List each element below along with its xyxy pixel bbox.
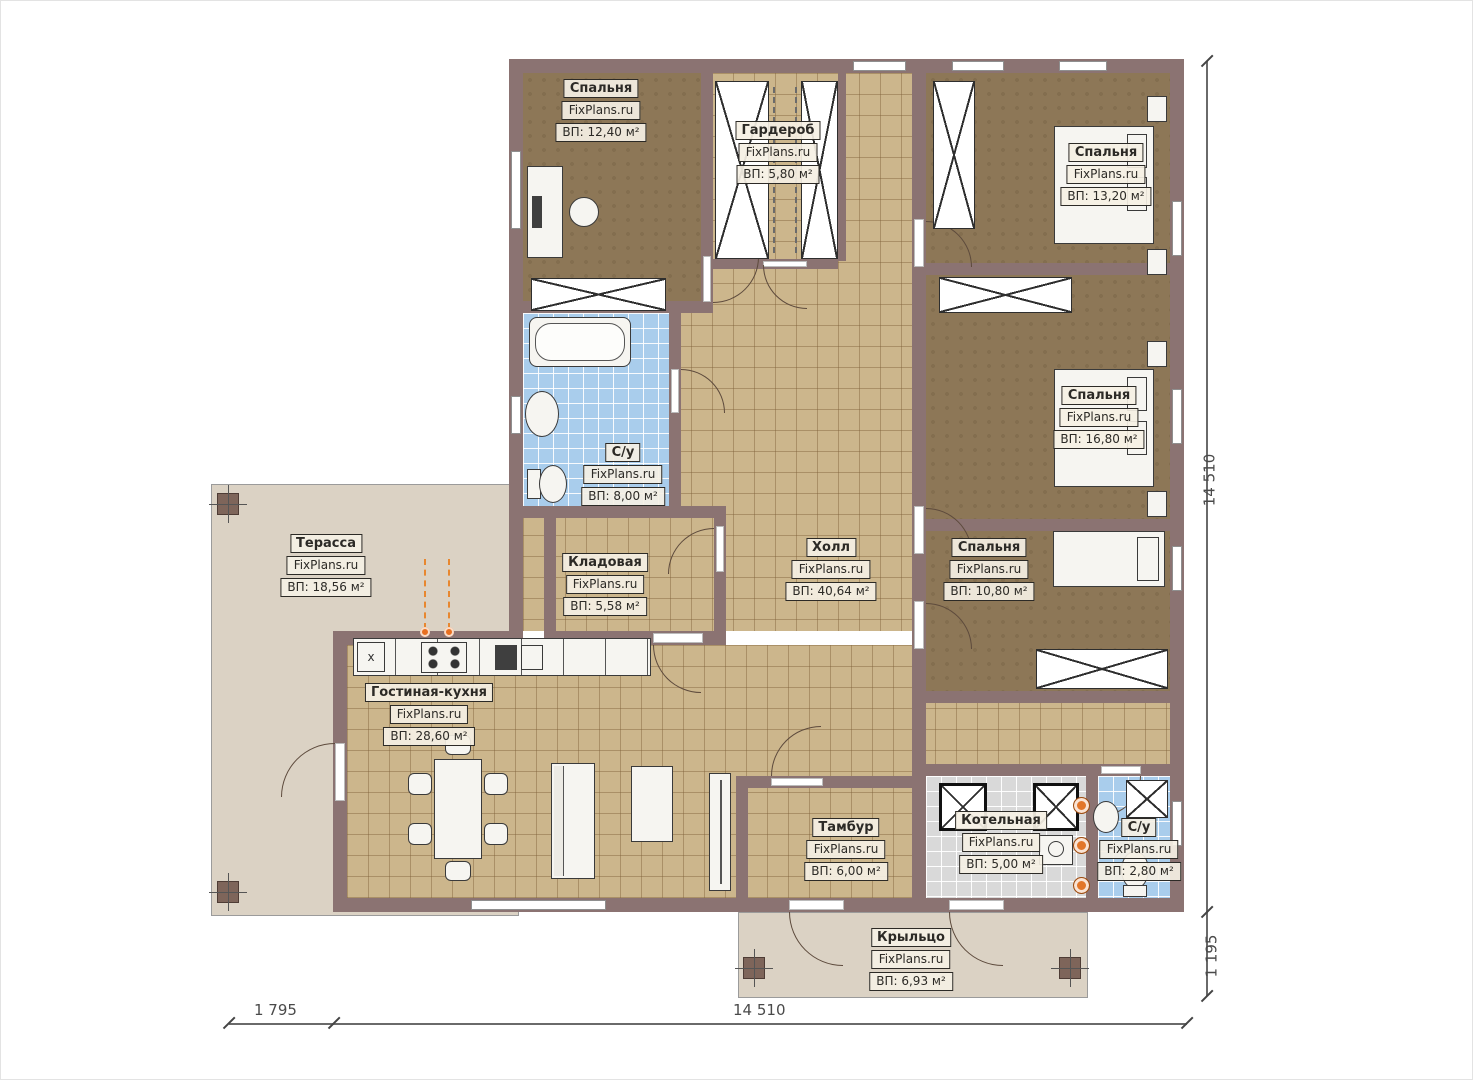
wardrobe-cabinet — [1036, 649, 1168, 689]
room-area: ВП: 13,20 м² — [1060, 187, 1151, 206]
room-label-bedroom1: Спальня FixPlans.ru ВП: 12,40 м² — [555, 79, 646, 142]
room-label-terrace: Терасса FixPlans.ru ВП: 18,56 м² — [280, 534, 371, 597]
sofa — [551, 763, 595, 879]
closet — [933, 81, 975, 229]
gas-line — [448, 559, 450, 629]
room-label-bedroom4: Спальня FixPlans.ru ВП: 10,80 м² — [943, 538, 1034, 601]
room-name: Крыльцо — [871, 928, 951, 947]
brand-link: FixPlans.ru — [566, 575, 645, 594]
brand-link: FixPlans.ru — [950, 560, 1029, 579]
door-opening — [949, 900, 1004, 910]
bathtub — [529, 317, 631, 367]
sink-drainer — [495, 645, 517, 670]
room-label-porch: Крыльцо FixPlans.ru ВП: 6,93 м² — [869, 928, 953, 991]
desk-chair — [569, 197, 599, 227]
chair — [484, 773, 508, 795]
wall — [926, 691, 1170, 703]
brand-link: FixPlans.ru — [792, 560, 871, 579]
nightstand — [1147, 96, 1167, 122]
kitchen-hood-marker: x — [357, 642, 385, 672]
room-area: ВП: 18,56 м² — [280, 578, 371, 597]
room-name: Терасса — [290, 534, 362, 553]
brand-link: FixPlans.ru — [739, 143, 818, 162]
valve-icon — [1073, 877, 1090, 894]
room-label-bath1: С/у FixPlans.ru ВП: 8,00 м² — [581, 443, 665, 506]
brand-link: FixPlans.ru — [807, 840, 886, 859]
window — [471, 900, 606, 910]
bathtub-basin — [535, 323, 625, 361]
room-label-wardrobe: Гардероб FixPlans.ru ВП: 5,80 м² — [736, 121, 821, 184]
room-label-bedroom2: Спальня FixPlans.ru ВП: 13,20 м² — [1060, 143, 1151, 206]
sink — [525, 391, 559, 437]
terrace-post — [217, 493, 239, 515]
room-label-hall: Холл FixPlans.ru ВП: 40,64 м² — [785, 538, 876, 601]
window — [1172, 389, 1182, 444]
window — [511, 396, 521, 434]
room-label-boiler: Котельная FixPlans.ru ВП: 5,00 м² — [955, 811, 1047, 874]
porch-post — [743, 957, 765, 979]
desktop-computer — [532, 196, 542, 228]
room-label-pantry: Кладовая FixPlans.ru ВП: 5,58 м² — [562, 553, 648, 616]
brand-link: FixPlans.ru — [287, 556, 366, 575]
floor-plan-canvas: x Спальня FixPlans.ru ВП: 12,40 м² Гарде… — [0, 0, 1473, 1080]
dimension-line-right — [1206, 61, 1208, 996]
closet — [939, 277, 1072, 313]
room-area: ВП: 5,80 м² — [736, 165, 820, 184]
window — [952, 61, 1004, 71]
room-area: ВП: 40,64 м² — [785, 582, 876, 601]
brand-link: FixPlans.ru — [584, 465, 663, 484]
room-label-bath2: С/у FixPlans.ru ВП: 2,80 м² — [1097, 818, 1181, 881]
door-opening — [914, 506, 924, 554]
toilet — [539, 465, 567, 503]
kitchen-marker-label: x — [367, 650, 374, 664]
room-name: Котельная — [955, 811, 1047, 830]
flame-icon — [420, 627, 430, 637]
chair — [484, 823, 508, 845]
room-label-bedroom3: Спальня FixPlans.ru ВП: 16,80 м² — [1053, 386, 1144, 449]
room-name: Спальня — [1069, 143, 1143, 162]
dimension-value-bottom-main: 14 510 — [733, 1001, 786, 1019]
flame-icon — [444, 627, 454, 637]
room-area: ВП: 5,58 м² — [563, 597, 647, 616]
chair — [408, 773, 432, 795]
toilet-tank — [1123, 885, 1147, 897]
room-name: Гардероб — [736, 121, 821, 140]
dimension-value-right-porch: 1 195 — [1202, 935, 1220, 978]
chair — [445, 861, 471, 881]
room-area: ВП: 6,00 м² — [804, 862, 888, 881]
door-opening — [653, 633, 703, 643]
sofa-back — [554, 766, 564, 876]
room-name: Спальня — [1062, 386, 1136, 405]
wall — [736, 776, 748, 912]
wall — [544, 518, 556, 631]
valve-icon — [1073, 797, 1090, 814]
washer-door — [1048, 841, 1064, 857]
dining-table — [434, 759, 482, 859]
door-opening — [1101, 766, 1141, 774]
door-opening — [716, 526, 724, 572]
dimension-line-bottom — [229, 1023, 1187, 1025]
room-name: С/у — [1122, 818, 1157, 837]
room-label-living: Гостиная-кухня FixPlans.ru ВП: 28,60 м² — [365, 683, 493, 746]
room-area: ВП: 8,00 м² — [581, 487, 665, 506]
kitchen-sink — [521, 645, 543, 670]
brand-link: FixPlans.ru — [390, 705, 469, 724]
window — [853, 61, 906, 71]
room-area: ВП: 28,60 м² — [383, 727, 474, 746]
dimension-value-bottom-left: 1 795 — [254, 1001, 297, 1019]
room-name: Спальня — [952, 538, 1026, 557]
door-opening — [789, 900, 844, 910]
room-name: С/у — [606, 443, 641, 462]
tv-stand — [709, 773, 731, 891]
room-area: ВП: 12,40 м² — [555, 123, 646, 142]
window — [511, 151, 521, 229]
brand-link: FixPlans.ru — [1067, 165, 1146, 184]
brand-link: FixPlans.ru — [962, 833, 1041, 852]
brand-link: FixPlans.ru — [1100, 840, 1179, 859]
coffee-table — [631, 766, 673, 842]
brand-link: FixPlans.ru — [1060, 408, 1139, 427]
wall — [333, 898, 1184, 912]
room-area: ВП: 2,80 м² — [1097, 862, 1181, 881]
door-opening — [335, 743, 345, 801]
wall — [736, 776, 924, 788]
porch-post — [1059, 957, 1081, 979]
nightstand — [1147, 341, 1167, 367]
room-name: Кладовая — [562, 553, 648, 572]
door-opening — [771, 778, 823, 786]
room-name: Спальня — [564, 79, 638, 98]
door-opening — [914, 219, 924, 267]
wall — [838, 73, 846, 261]
nightstand — [1147, 491, 1167, 517]
brand-link: FixPlans.ru — [872, 950, 951, 969]
room-name: Тамбур — [812, 818, 879, 837]
wall — [1170, 59, 1184, 912]
room-label-vestibule: Тамбур FixPlans.ru ВП: 6,00 м² — [804, 818, 888, 881]
gas-line — [424, 559, 426, 629]
door-opening — [914, 601, 924, 649]
nightstand — [1147, 249, 1167, 275]
pillow — [1137, 537, 1159, 581]
wall — [509, 59, 523, 645]
window — [1059, 61, 1107, 71]
wall — [523, 506, 726, 518]
stove — [421, 642, 467, 673]
dimension-value-right-main: 14 510 — [1200, 454, 1218, 507]
window — [1172, 201, 1182, 256]
room-area: ВП: 10,80 м² — [943, 582, 1034, 601]
brand-link: FixPlans.ru — [562, 101, 641, 120]
room-area: ВП: 5,00 м² — [959, 855, 1043, 874]
tv-screen — [720, 780, 722, 884]
door-opening — [703, 256, 711, 302]
room-name: Холл — [806, 538, 856, 557]
shower — [1126, 780, 1168, 818]
wardrobe-cabinet — [531, 278, 666, 311]
room-area: ВП: 16,80 м² — [1053, 430, 1144, 449]
room-name: Гостиная-кухня — [365, 683, 493, 702]
room-area: ВП: 6,93 м² — [869, 972, 953, 991]
terrace-post — [217, 881, 239, 903]
window — [1172, 546, 1182, 591]
door-opening — [671, 369, 679, 413]
wall — [669, 313, 681, 518]
chair — [408, 823, 432, 845]
valve-icon — [1073, 837, 1090, 854]
